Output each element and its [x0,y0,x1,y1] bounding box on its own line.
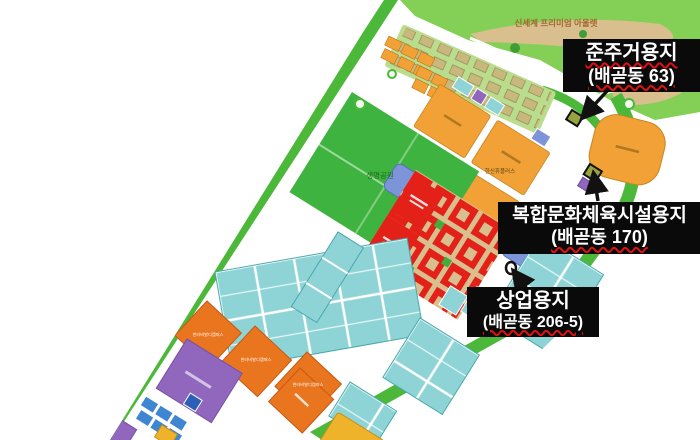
zoning-map-screenshot: 신세계 프리미엄 아울렛 생명공원 한신휴플러스 한라비발디캠퍼스 한라비발디캠… [0,0,700,440]
annotation-title: 상업용지 [471,290,595,314]
apartment-label: 한신휴플러스 [485,167,515,175]
annotation-semi-residential: 준주거용지 (배곧동 63) [563,39,700,92]
annotation-title: 복합문화체육시설용지 [502,205,697,227]
tree-icon [510,43,520,53]
annotation-lot-number: (배곧동 206-5) [471,314,595,333]
annotation-lot-number: (배곧동 170) [502,227,697,248]
roundabout-icon [388,70,396,78]
tree-icon [579,30,587,38]
apartment-label: 한라비발디캠퍼스 [241,356,272,363]
annotation-title: 준주거용지 [567,42,696,66]
park-label: 생명공원 [366,170,394,180]
apartment-label: 한라비발디캠퍼스 [193,331,224,338]
roundabout-icon [355,99,365,109]
outlet-label: 신세계 프리미엄 아울렛 [515,18,598,28]
apartment-label: 한라비발디캠퍼스 [293,381,324,388]
annotation-commercial: 상업용지 (배곧동 206-5) [467,287,599,337]
school-parcel [105,418,136,440]
target-parcel-culture-sports [577,164,602,193]
annotation-lot-number: (배곧동 63) [567,66,696,87]
annotation-culture-sports: 복합문화체육시설용지 (배곧동 170) [498,202,700,254]
arrow-semi-residential [584,90,608,116]
roundabout-icon [624,99,634,109]
target-parcel-commercial [506,262,516,274]
